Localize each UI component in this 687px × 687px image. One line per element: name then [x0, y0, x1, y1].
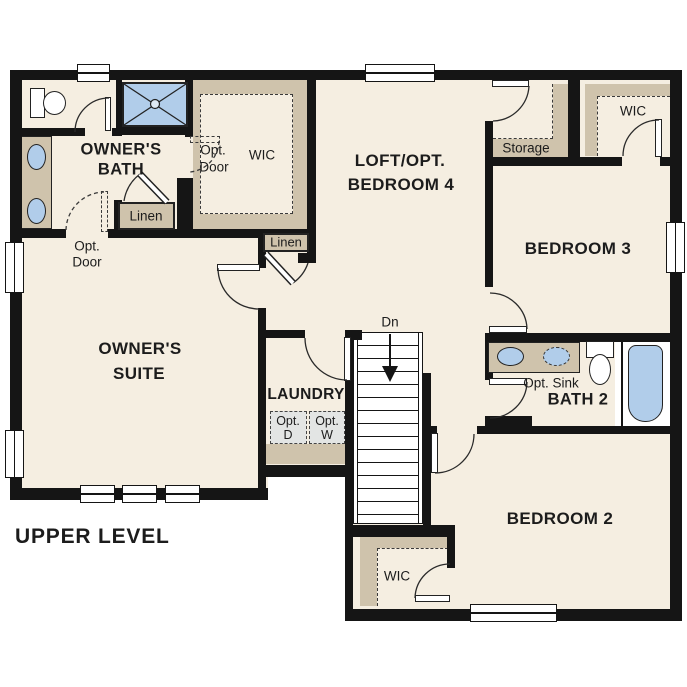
owners-bath-label-line2: BATH [98, 161, 144, 180]
wall-wic-bedroom2-top [353, 525, 455, 537]
window-owners-bath [77, 64, 110, 82]
opt-washer-label-line1: Opt. [315, 414, 339, 428]
storage-label: Storage [502, 141, 549, 156]
tub-niche-divider [621, 342, 623, 427]
wic-owners-label: WIC [249, 148, 275, 163]
window-suite-bottom-3 [165, 485, 200, 503]
window-pane-divider [81, 493, 114, 494]
bedroom3-label: BEDROOM 3 [525, 239, 632, 259]
wall-stair-top-stub [353, 330, 362, 340]
bathtub-bath2 [628, 345, 663, 422]
wic-bedroom3-label: WIC [620, 104, 646, 119]
stair-down-arrow-icon [382, 366, 398, 382]
wall-bedroom3-top-a [485, 157, 622, 166]
opt-door-suite-label-line2: Door [72, 255, 101, 270]
wic-bedroom2-label: WIC [384, 569, 410, 584]
window-pane-divider [123, 493, 156, 494]
window-bedroom2 [470, 604, 557, 622]
sink-bath2 [497, 347, 524, 366]
window-suite-left-2 [5, 430, 24, 478]
door-leaf-bedroom2 [431, 433, 438, 473]
owners-suite-label-line1: OWNER'S [98, 339, 181, 359]
wall-bath-wic-block [177, 178, 193, 238]
opt-door-suite-label-line1: Opt. [74, 239, 100, 254]
window-pane-divider [14, 243, 15, 292]
stair-down-label: Dn [381, 315, 398, 330]
window-pane-divider [78, 72, 109, 73]
door-leaf-storage [492, 80, 529, 87]
owners-suite-label-line2: SUITE [113, 364, 165, 384]
laundry-label: LAUNDRY [267, 386, 344, 404]
optional-door-leaf-suite [101, 191, 108, 232]
wall-laundry-top [258, 330, 305, 338]
laundry-counter [266, 444, 345, 464]
door-leaf-toilet-niche [105, 97, 111, 131]
bedroom2-label: BEDROOM 2 [507, 509, 614, 529]
opt-door-wic-label-line2: Door [199, 160, 228, 175]
wall-bath-south-a [10, 229, 66, 238]
wall-bedroom3-left [485, 121, 493, 287]
door-leaf-wic-bedroom3 [655, 119, 662, 157]
window-suite-bottom-1 [80, 485, 115, 503]
window-suite-left-1 [5, 242, 24, 293]
window-pane-divider [14, 431, 15, 477]
window-suite-bottom-2 [122, 485, 157, 503]
staircase [353, 332, 423, 524]
stair-direction-line [389, 334, 391, 367]
wall-bath2-top [485, 333, 682, 342]
wall-shower-bottom [116, 127, 193, 135]
wall-toilet-niche [20, 128, 85, 136]
sink-owners-1 [27, 144, 46, 170]
plan-title: UPPER LEVEL [15, 525, 170, 549]
shower-owners [122, 82, 188, 127]
wall-top [10, 70, 682, 80]
window-loft [365, 64, 435, 82]
stair-treads [357, 333, 419, 523]
sink-owners-2 [27, 198, 46, 224]
toilet-bowl-bath2 [589, 354, 611, 385]
wall-storage-wic-divider [568, 80, 580, 165]
wall-wic-bedroom2-right [447, 537, 455, 568]
window-pane-divider [166, 493, 199, 494]
window-pane-divider [675, 223, 676, 272]
owners-bath-label-line1: OWNER'S [81, 141, 162, 160]
door-leaf-laundry [344, 337, 351, 381]
floor-plan: OWNER'S BATH WIC Opt. Door Linen Opt. Do… [0, 0, 687, 687]
sink-bath2-optional [543, 347, 570, 366]
door-leaf-suite-entry [217, 264, 260, 271]
wall-bath2-jamb [485, 416, 532, 426]
loft-label-line2: BEDROOM 4 [348, 175, 455, 195]
linen-bath-label: Linen [129, 209, 162, 224]
wall-laundry-bottom [258, 465, 353, 477]
loft-label-line1: LOFT/OPT. [355, 151, 445, 171]
opt-door-wic-label-line1: Opt. [200, 143, 226, 158]
storage-inner [493, 84, 553, 139]
wall-right [670, 70, 682, 621]
window-pane-divider [471, 612, 556, 613]
opt-dryer-label-line2: D [283, 428, 292, 442]
door-leaf-bath2 [489, 378, 527, 385]
opt-sink-label: Opt. Sink [523, 376, 579, 391]
toilet-bowl-owners [43, 91, 66, 115]
opt-washer-label-line2: W [321, 428, 333, 442]
window-bedroom3 [666, 222, 685, 273]
wall-bedroom2-top-b [477, 426, 682, 434]
window-pane-divider [366, 72, 434, 73]
opt-dryer-label-line1: Opt. [276, 414, 300, 428]
door-leaf-bedroom3 [489, 326, 527, 333]
wall-bedroom3-top-b [660, 157, 682, 166]
bath2-label: BATH 2 [548, 391, 609, 410]
wall-stair-right [423, 373, 431, 525]
linen-hall-label: Linen [270, 235, 302, 250]
door-leaf-wic-bedroom2 [415, 595, 450, 602]
wall-hall-stub [298, 253, 316, 263]
